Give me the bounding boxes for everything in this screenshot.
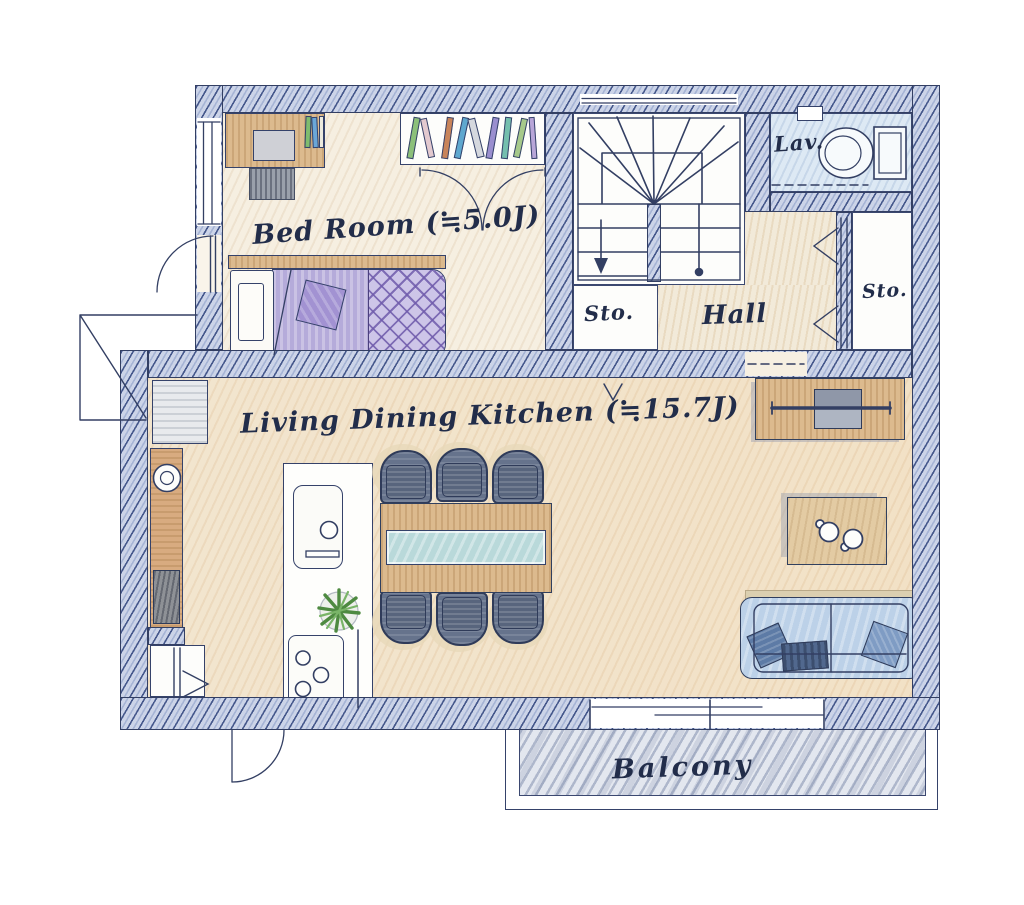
storage-left-label: Sto. bbox=[583, 299, 634, 327]
bedroom-window-lines bbox=[198, 122, 220, 224]
storage-right-label: Sto. bbox=[861, 279, 908, 303]
island-faucet bbox=[306, 522, 339, 558]
sofa-seat-lines bbox=[754, 604, 908, 672]
bedroom-swing-door bbox=[157, 236, 216, 292]
porch-outline bbox=[80, 315, 197, 420]
folding-door-triangles-right bbox=[814, 218, 847, 348]
toilet bbox=[819, 127, 906, 179]
plan-linework bbox=[0, 0, 1024, 905]
exterior-swing-door bbox=[232, 730, 284, 782]
lavatory-label: Lav. bbox=[773, 128, 824, 156]
kitchen-round-sink bbox=[154, 465, 181, 492]
floor-plan: Bed Room (≒5.0J) Living Dining Kitchen (… bbox=[0, 0, 1024, 905]
stair-window-lines bbox=[582, 99, 736, 104]
u-turn-staircase bbox=[578, 116, 740, 280]
potted-plant bbox=[319, 590, 359, 631]
hall-label: Hall bbox=[701, 299, 767, 331]
tv-screen-line bbox=[772, 402, 890, 414]
cooktop-burners bbox=[296, 651, 329, 697]
mugs bbox=[816, 520, 863, 551]
balcony-label: Balcony bbox=[612, 750, 754, 786]
balcony-sliding-door-lines bbox=[590, 700, 824, 729]
folding-door-closet bbox=[174, 648, 208, 697]
bed-fold-line bbox=[274, 270, 291, 355]
